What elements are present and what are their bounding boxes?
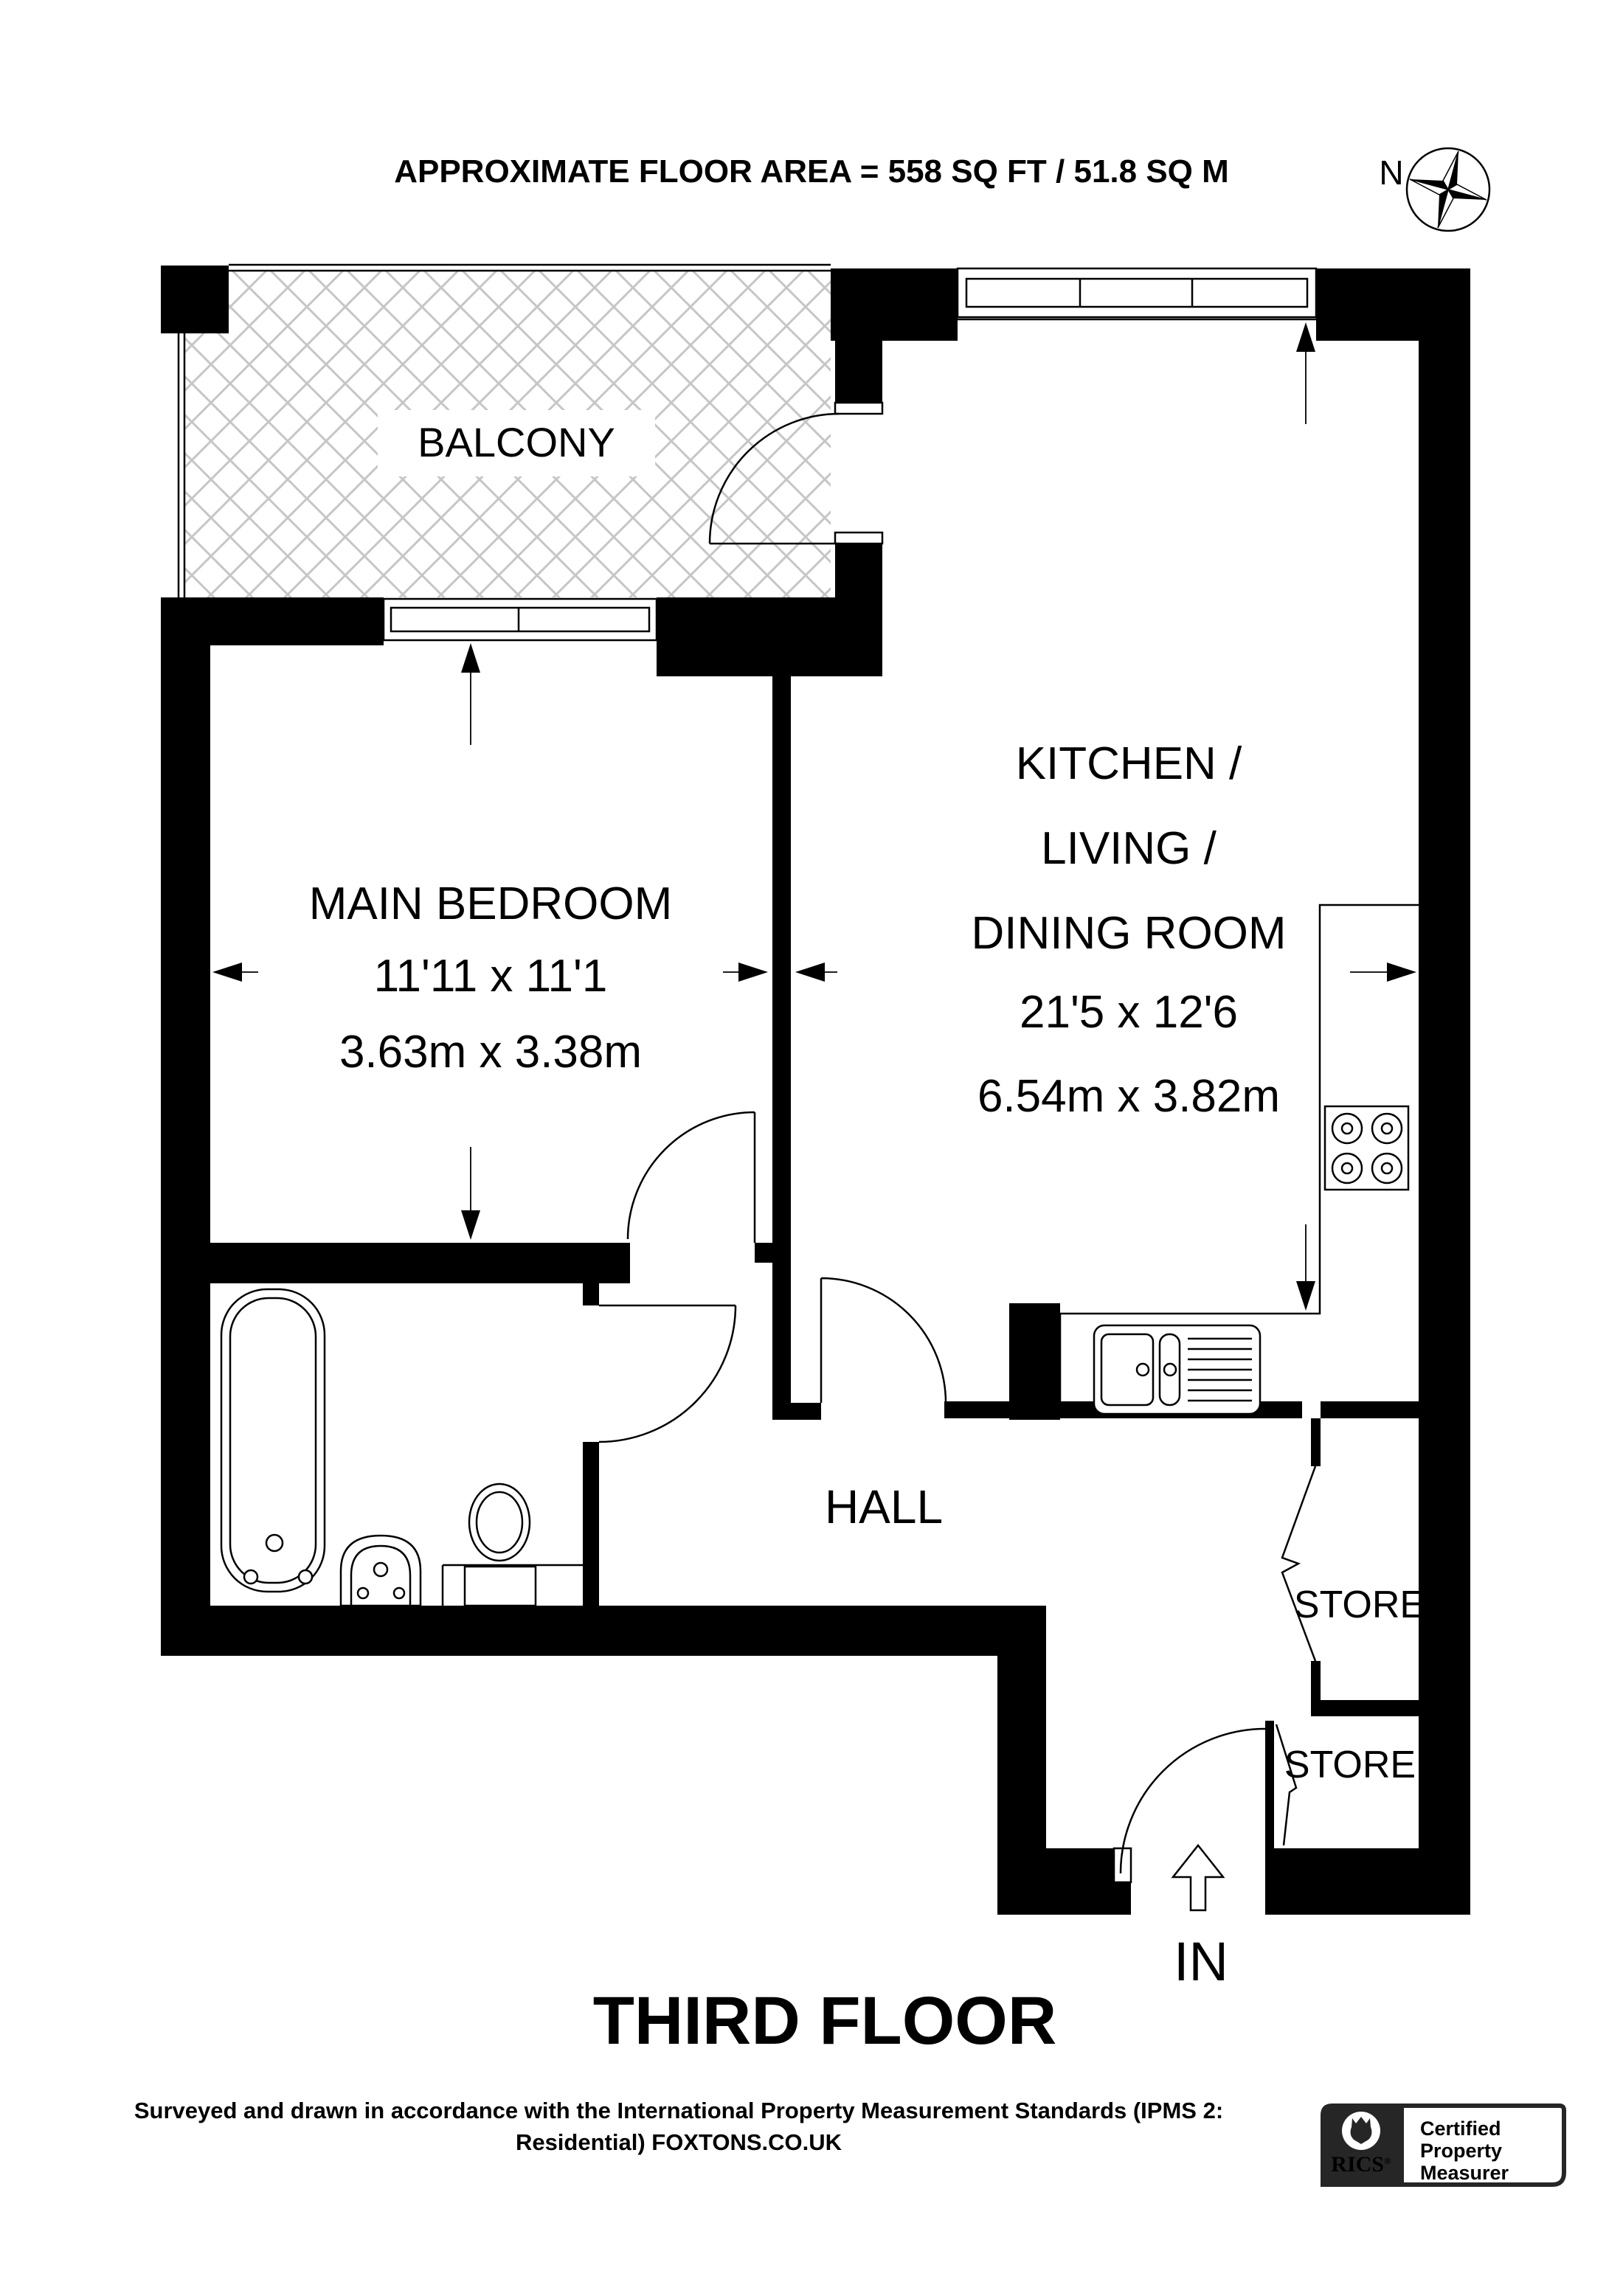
bedroom-label: MAIN BEDROOM (309, 878, 673, 929)
rics-badge: RICS® Certified Property Measurer (1321, 2103, 1564, 2187)
toilet-icon (465, 1484, 536, 1606)
badge-line2: Property (1420, 2140, 1502, 2162)
kitchen-label-line2: LIVING / (1041, 823, 1217, 874)
bedroom-window (384, 599, 657, 640)
kitchen-label-line1: KITCHEN / (1016, 738, 1242, 789)
hall-label: HALL (825, 1480, 943, 1533)
footer-line1: Surveyed and drawn in accordance with th… (134, 2098, 1223, 2123)
floor-plan: APPROXIMATE FLOOR AREA = 558 SQ FT / 51.… (0, 0, 1623, 2296)
bedroom-dims-imperial: 11'11 x 11'1 (374, 951, 608, 1002)
kitchen-label-line3: DINING ROOM (971, 908, 1286, 959)
kitchen-window (958, 268, 1316, 319)
bathtub-icon (221, 1289, 325, 1592)
rics-wordmark: RICS® (1331, 2152, 1391, 2177)
floor-area-header: APPROXIMATE FLOOR AREA = 558 SQ FT / 51.… (394, 153, 1229, 190)
kitchen-dims-metric: 6.54m x 3.82m (977, 1071, 1280, 1122)
badge-line3: Measurer (1420, 2162, 1509, 2184)
balcony-label: BALCONY (418, 419, 615, 465)
footer-line2: Residential) FOXTONS.CO.UK (516, 2129, 842, 2155)
store-1-label: STORE (1294, 1584, 1425, 1626)
bedroom-dims-metric: 3.63m x 3.38m (339, 1027, 642, 1078)
door-jamb (835, 533, 882, 544)
store-2-label: STORE (1284, 1744, 1416, 1786)
entry-in-label: IN (1174, 1931, 1228, 1992)
sink-icon (1094, 1325, 1260, 1414)
badge-line1: Certified (1420, 2118, 1501, 2140)
kitchen-dims-imperial: 21'5 x 12'6 (1020, 987, 1238, 1038)
basin-icon (341, 1536, 421, 1606)
hob-icon (1325, 1106, 1408, 1190)
compass-north-label: N (1379, 153, 1403, 192)
door-jamb (835, 403, 882, 414)
floor-title: THIRD FLOOR (593, 1983, 1057, 2059)
